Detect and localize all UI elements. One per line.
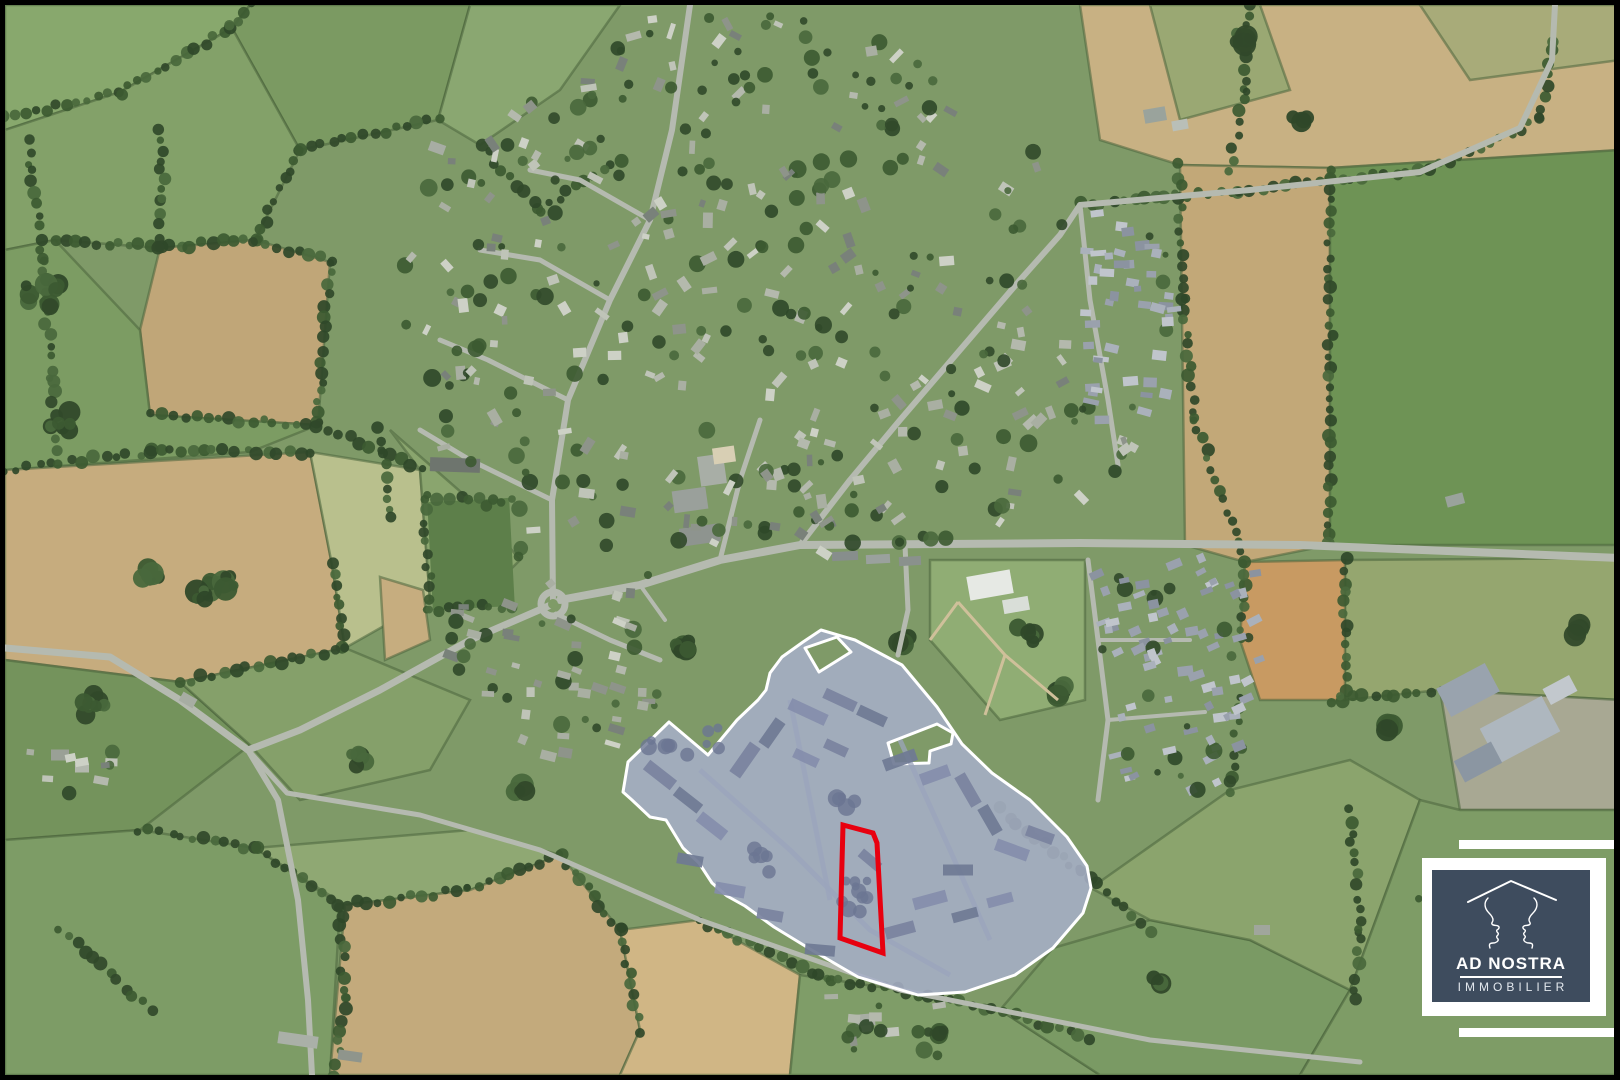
- face-profile-right-icon: [1523, 898, 1537, 948]
- logo-panel: AD NOSTRA IMMOBILIER: [1432, 870, 1590, 1002]
- logo-top-bar: [1459, 840, 1614, 849]
- satellite-map: [0, 0, 1620, 1080]
- logo-subtitle: IMMOBILIER: [1458, 981, 1569, 993]
- logo-title: AD NOSTRA: [1456, 955, 1566, 972]
- face-profile-left-icon: [1485, 898, 1499, 948]
- roof-icon: [1468, 881, 1556, 902]
- house-faces-icon: [1432, 870, 1590, 954]
- logo-divider: [1460, 976, 1562, 978]
- logo-bottom-bar: [1459, 1028, 1614, 1037]
- agency-logo: AD NOSTRA IMMOBILIER: [1422, 858, 1606, 1016]
- listing-image: AD NOSTRA IMMOBILIER: [0, 0, 1620, 1080]
